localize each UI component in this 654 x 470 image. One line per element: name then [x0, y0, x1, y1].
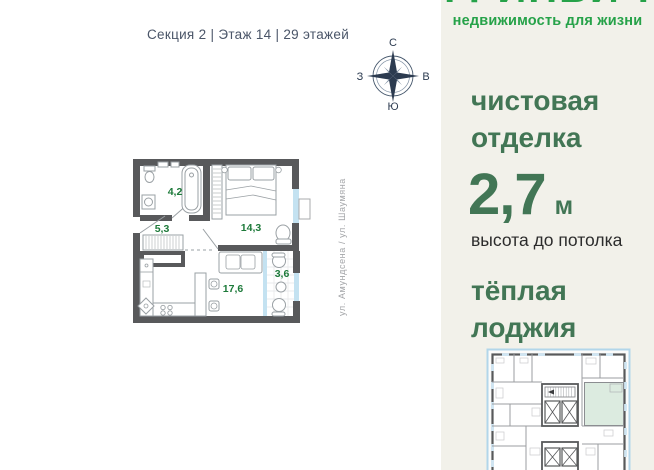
building-floor-plate — [486, 348, 632, 470]
floor-plan-drawing: 4,2 5,3 14,3 17,6 3,6 — [125, 155, 315, 327]
ceiling-height-caption: высота до потолка — [471, 230, 622, 251]
feature-loggia-line1: тёплая — [471, 272, 576, 309]
room-area-hall: 5,3 — [155, 223, 170, 235]
highlighted-unit — [585, 383, 624, 426]
flyer-page: Секция 2 | Этаж 14 | 29 этажей С Ю З В — [0, 0, 654, 470]
room-area-bedroom: 14,3 — [241, 222, 262, 234]
compass: С Ю З В — [355, 35, 431, 111]
ceiling-height: 2,7м — [468, 166, 573, 224]
section-floor-line: Секция 2 | Этаж 14 | 29 этажей — [147, 27, 349, 42]
ceiling-height-unit: м — [555, 192, 574, 220]
room-area-kitchen-living: 17,6 — [223, 283, 244, 295]
apartment-floor-plan: 4,2 5,3 14,3 17,6 3,6 — [125, 155, 315, 327]
street-label: ул. Амундсена / ул. Шаумяна — [337, 166, 347, 316]
building-core-lower — [542, 442, 578, 470]
room-area-loggia: 3,6 — [275, 268, 290, 280]
brand-tagline: недвижимость для жизни — [441, 13, 654, 29]
feature-loggia-line2: лоджия — [471, 309, 576, 346]
compass-west-label: З — [357, 71, 364, 83]
compass-north-label: С — [389, 37, 397, 49]
ceiling-height-value: 2,7 — [468, 162, 546, 227]
hall-wardrobe — [143, 235, 183, 250]
feature-loggia: тёплая лоджия — [471, 272, 576, 346]
compass-east-label: В — [422, 71, 429, 83]
compass-icon: С Ю З В — [355, 35, 431, 111]
feature-finish-line2: отделка — [471, 119, 599, 156]
building-core — [542, 384, 578, 426]
ac-basket — [299, 199, 310, 219]
sidebar: ГРИНВИЧ недвижимость для жизни чистовая … — [441, 0, 654, 470]
compass-south-label: Ю — [387, 101, 398, 111]
room-area-bathroom: 4,2 — [168, 186, 183, 198]
brand-name: ГРИНВИЧ — [441, 0, 654, 9]
feature-finish-line1: чистовая — [471, 82, 599, 119]
feature-finish: чистовая отделка — [471, 82, 599, 156]
building-plan-drawing — [486, 348, 632, 470]
